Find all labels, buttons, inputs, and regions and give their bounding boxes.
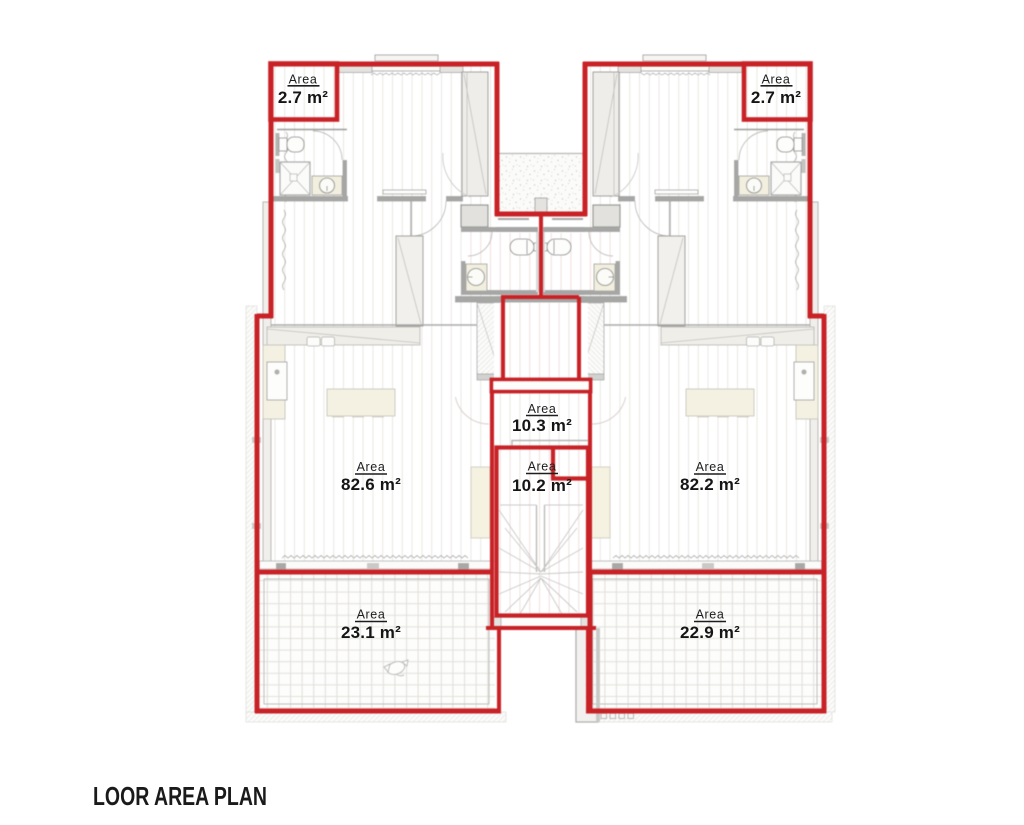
svg-text:Area: Area bbox=[357, 460, 386, 474]
svg-text:82.6 m²: 82.6 m² bbox=[341, 475, 401, 494]
svg-text:10.3 m²: 10.3 m² bbox=[512, 416, 572, 435]
svg-text:82.2 m²: 82.2 m² bbox=[680, 475, 740, 494]
svg-text:Area: Area bbox=[528, 460, 557, 474]
svg-text:23.1 m²: 23.1 m² bbox=[341, 623, 401, 642]
svg-text:LOOR AREA PLAN: LOOR AREA PLAN bbox=[93, 781, 267, 811]
svg-text:Area: Area bbox=[696, 460, 725, 474]
svg-text:Area: Area bbox=[357, 608, 386, 622]
svg-text:Area: Area bbox=[289, 73, 318, 87]
svg-text:2.7 m²: 2.7 m² bbox=[278, 88, 328, 107]
svg-text:Area: Area bbox=[762, 73, 791, 87]
svg-text:22.9 m²: 22.9 m² bbox=[680, 623, 740, 642]
svg-text:Area: Area bbox=[528, 402, 557, 416]
svg-text:10.2 m²: 10.2 m² bbox=[512, 476, 572, 495]
svg-text:2.7 m²: 2.7 m² bbox=[751, 88, 801, 107]
svg-text:Area: Area bbox=[696, 608, 725, 622]
